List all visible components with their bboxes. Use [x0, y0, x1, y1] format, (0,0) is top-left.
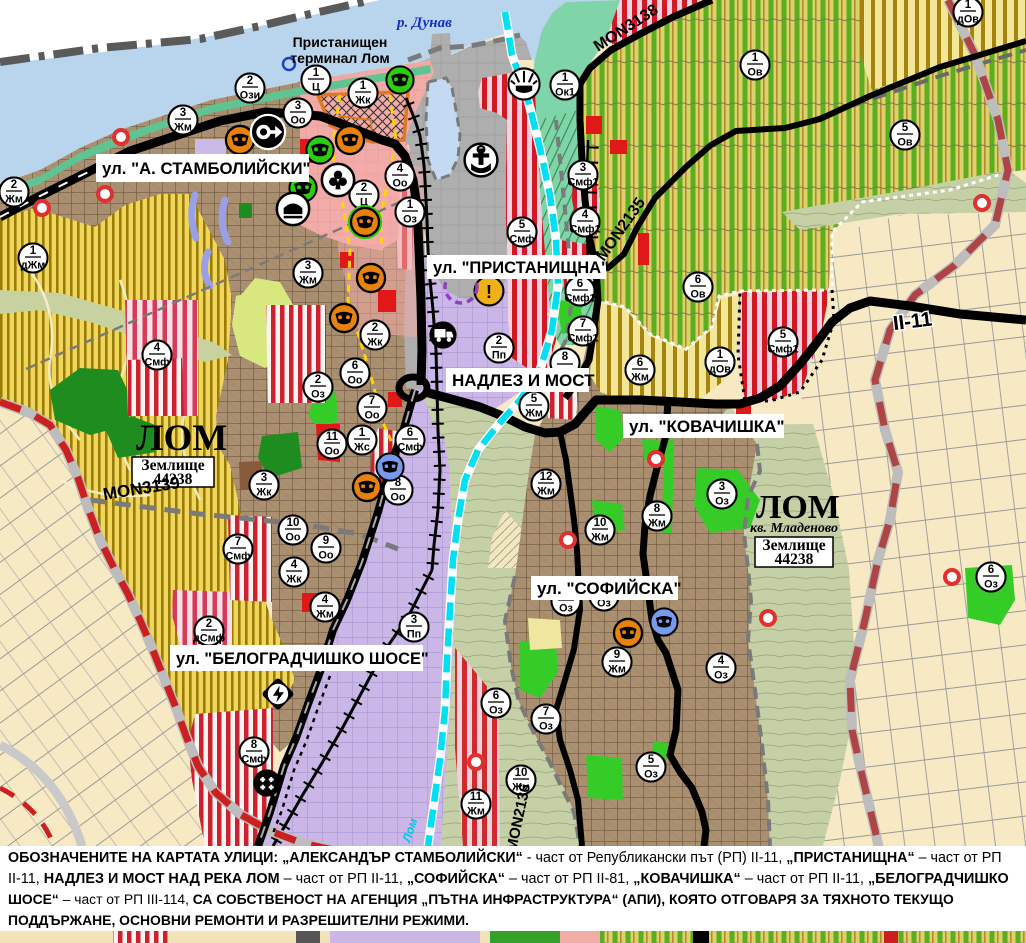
- svg-text:7: 7: [543, 706, 549, 718]
- svg-text:Ц: Ц: [312, 82, 320, 94]
- svg-text:4: 4: [322, 594, 329, 606]
- svg-text:Жм: Жм: [536, 486, 555, 498]
- svg-text:р. Дунав: р. Дунав: [395, 15, 452, 31]
- svg-text:Жк: Жк: [354, 95, 371, 107]
- svg-text:4: 4: [397, 163, 404, 175]
- svg-text:5: 5: [902, 122, 909, 134]
- svg-text:4: 4: [718, 655, 725, 667]
- svg-text:Пп: Пп: [407, 629, 421, 641]
- svg-text:Жк: Жк: [285, 574, 302, 586]
- svg-text:Жм: Жм: [4, 194, 23, 206]
- svg-text:6: 6: [988, 564, 994, 576]
- svg-text:Смф: Смф: [397, 442, 423, 454]
- svg-text:1: 1: [752, 52, 759, 64]
- svg-text:Оо: Оо: [291, 115, 306, 127]
- svg-text:3: 3: [180, 107, 186, 119]
- svg-text:Смф1: Смф1: [767, 344, 798, 356]
- svg-text:6: 6: [407, 427, 413, 439]
- svg-text:9: 9: [323, 535, 329, 547]
- svg-text:3: 3: [580, 162, 586, 174]
- svg-text:1: 1: [407, 199, 414, 211]
- svg-text:Оо: Оо: [348, 375, 363, 387]
- svg-text:3: 3: [719, 481, 725, 493]
- svg-text:Жм: Жм: [524, 408, 543, 420]
- svg-text:Ози: Ози: [240, 90, 260, 102]
- svg-text:2: 2: [247, 75, 253, 87]
- svg-text:5: 5: [780, 329, 787, 341]
- svg-text:5: 5: [531, 393, 538, 405]
- svg-text:1: 1: [359, 427, 366, 439]
- svg-text:1: 1: [717, 349, 724, 361]
- svg-text:6: 6: [577, 278, 583, 290]
- svg-text:Жс: Жс: [353, 442, 370, 454]
- svg-text:3: 3: [411, 614, 417, 626]
- svg-text:1: 1: [562, 72, 569, 84]
- svg-text:1: 1: [30, 245, 37, 257]
- svg-text:7: 7: [580, 318, 586, 330]
- svg-text:4: 4: [154, 342, 161, 354]
- svg-text:Ов: Ов: [897, 137, 912, 149]
- svg-text:Ок1: Ок1: [555, 87, 575, 99]
- svg-text:Жм: Жм: [298, 275, 317, 287]
- svg-text:4: 4: [291, 559, 298, 571]
- svg-text:8: 8: [654, 503, 661, 515]
- svg-text:ул. "ПРИСТАНИЩНА": ул. "ПРИСТАНИЩНА": [433, 259, 609, 277]
- svg-text:II-11, НАДЛЕЗ И МОСТ НАД РЕКА: II-11, НАДЛЕЗ И МОСТ НАД РЕКА ЛОМ – част…: [8, 869, 1009, 887]
- svg-text:10: 10: [594, 517, 607, 529]
- svg-text:11: 11: [326, 431, 339, 443]
- svg-text:2: 2: [315, 374, 321, 386]
- svg-text:6: 6: [695, 274, 701, 286]
- svg-text:8: 8: [251, 739, 258, 751]
- svg-text:ул. "А. СТАМБОЛИЙСКИ": ул. "А. СТАМБОЛИЙСКИ": [102, 159, 310, 178]
- svg-text:6: 6: [352, 360, 358, 372]
- svg-text:5: 5: [648, 754, 655, 766]
- svg-text:Смф1: Смф1: [567, 177, 598, 189]
- svg-text:12: 12: [540, 471, 553, 483]
- svg-text:Оо: Оо: [325, 446, 340, 458]
- svg-text:Оз: Оз: [715, 496, 729, 508]
- svg-text:Жк: Жк: [366, 337, 383, 349]
- svg-text:Жм: Жм: [647, 518, 666, 530]
- svg-text:5: 5: [519, 219, 526, 231]
- svg-text:Жм: Жм: [466, 806, 485, 818]
- svg-text:!: !: [486, 281, 492, 302]
- svg-text:ОБОЗНАЧЕНИТЕ НА КАРТАТА УЛИЦИ:: ОБОЗНАЧЕНИТЕ НА КАРТАТА УЛИЦИ: „АЛЕКСАНД…: [8, 848, 1002, 866]
- svg-text:2: 2: [372, 322, 378, 334]
- svg-text:дОв: дОв: [957, 14, 979, 26]
- svg-text:ШОСЕ“ – част от РП III-114, СА: ШОСЕ“ – част от РП III-114, СА СОБСТВЕНО…: [8, 891, 954, 907]
- svg-text:2: 2: [361, 182, 367, 194]
- svg-text:Оо: Оо: [319, 550, 334, 562]
- svg-text:НАДЛЕЗ И МОСТ: НАДЛЕЗ И МОСТ: [452, 371, 595, 390]
- svg-text:Ов: Ов: [747, 67, 762, 79]
- svg-text:Смф1: Смф1: [564, 293, 595, 305]
- svg-text:Оз: Оз: [489, 705, 503, 717]
- svg-text:Оз: Оз: [311, 389, 325, 401]
- svg-text:Смф1: Смф1: [569, 224, 600, 236]
- svg-text:6: 6: [493, 690, 499, 702]
- svg-text:Оз: Оз: [984, 579, 998, 591]
- svg-text:ул. "БЕЛОГРАДЧИШКО ШОСЕ": ул. "БЕЛОГРАДЧИШКО ШОСЕ": [176, 650, 429, 668]
- svg-text:3: 3: [305, 260, 311, 272]
- svg-text:3: 3: [295, 100, 301, 112]
- svg-text:Оз: Оз: [644, 769, 658, 781]
- svg-text:2: 2: [496, 335, 502, 347]
- svg-text:9: 9: [614, 649, 620, 661]
- svg-text:Жм: Жм: [590, 532, 609, 544]
- svg-text:10: 10: [287, 517, 300, 529]
- svg-text:ПОДДЪРЖАНЕ, ОСНОВНИ РЕМОНТИ И: ПОДДЪРЖАНЕ, ОСНОВНИ РЕМОНТИ И РАЗРЕШИТЕЛ…: [8, 912, 469, 928]
- svg-text:Жк: Жк: [255, 487, 272, 499]
- svg-text:Смф: Смф: [144, 357, 170, 369]
- svg-text:7: 7: [369, 395, 375, 407]
- svg-text:Жм: Жм: [315, 609, 334, 621]
- svg-text:4: 4: [582, 209, 589, 221]
- svg-text:Пристанищен: Пристанищен: [293, 34, 388, 50]
- svg-text:1: 1: [313, 67, 320, 79]
- svg-text:Оз: Оз: [714, 670, 728, 682]
- svg-text:Оо: Оо: [391, 492, 406, 504]
- svg-text:7: 7: [235, 536, 241, 548]
- svg-text:Оо: Оо: [286, 532, 301, 544]
- svg-text:Оз: Оз: [539, 721, 553, 733]
- svg-text:дСмф: дСмф: [193, 633, 225, 645]
- svg-text:терминал Лом: терминал Лом: [290, 50, 390, 66]
- svg-text:8: 8: [562, 351, 569, 363]
- svg-text:II-11: II-11: [892, 308, 933, 335]
- svg-text:дЖм: дЖм: [21, 260, 46, 272]
- svg-text:Смф: Смф: [509, 234, 535, 246]
- svg-text:ул. "КОВАЧИШКА": ул. "КОВАЧИШКА": [629, 417, 785, 436]
- svg-text:ЛОМ: ЛОМ: [136, 418, 227, 459]
- svg-text:кв. Младеново: кв. Младеново: [750, 521, 838, 536]
- svg-text:2: 2: [206, 618, 212, 630]
- svg-text:6: 6: [637, 357, 643, 369]
- svg-text:44238: 44238: [775, 551, 814, 568]
- svg-text:Оо: Оо: [365, 410, 380, 422]
- svg-text:Жм: Жм: [173, 122, 192, 134]
- svg-text:Смф: Смф: [241, 754, 267, 766]
- svg-text:2: 2: [11, 179, 17, 191]
- svg-text:ул. "СОФИЙСКА": ул. "СОФИЙСКА": [537, 579, 682, 598]
- svg-text:Оо: Оо: [393, 178, 408, 190]
- svg-text:1: 1: [965, 0, 972, 11]
- svg-text:Пп: Пп: [492, 350, 506, 362]
- svg-text:Жм: Жм: [607, 664, 626, 676]
- svg-text:Ов: Ов: [690, 289, 705, 301]
- svg-text:Смф1: Смф1: [567, 333, 598, 345]
- svg-text:Смф: Смф: [225, 551, 251, 563]
- svg-text:3: 3: [261, 472, 267, 484]
- svg-text:11: 11: [470, 791, 483, 803]
- svg-text:1: 1: [360, 80, 367, 92]
- svg-text:10: 10: [515, 767, 528, 779]
- svg-text:дОв: дОв: [709, 364, 731, 376]
- svg-text:Жм: Жм: [630, 372, 649, 384]
- svg-text:Оз: Оз: [559, 603, 573, 615]
- svg-text:Оз: Оз: [403, 214, 417, 226]
